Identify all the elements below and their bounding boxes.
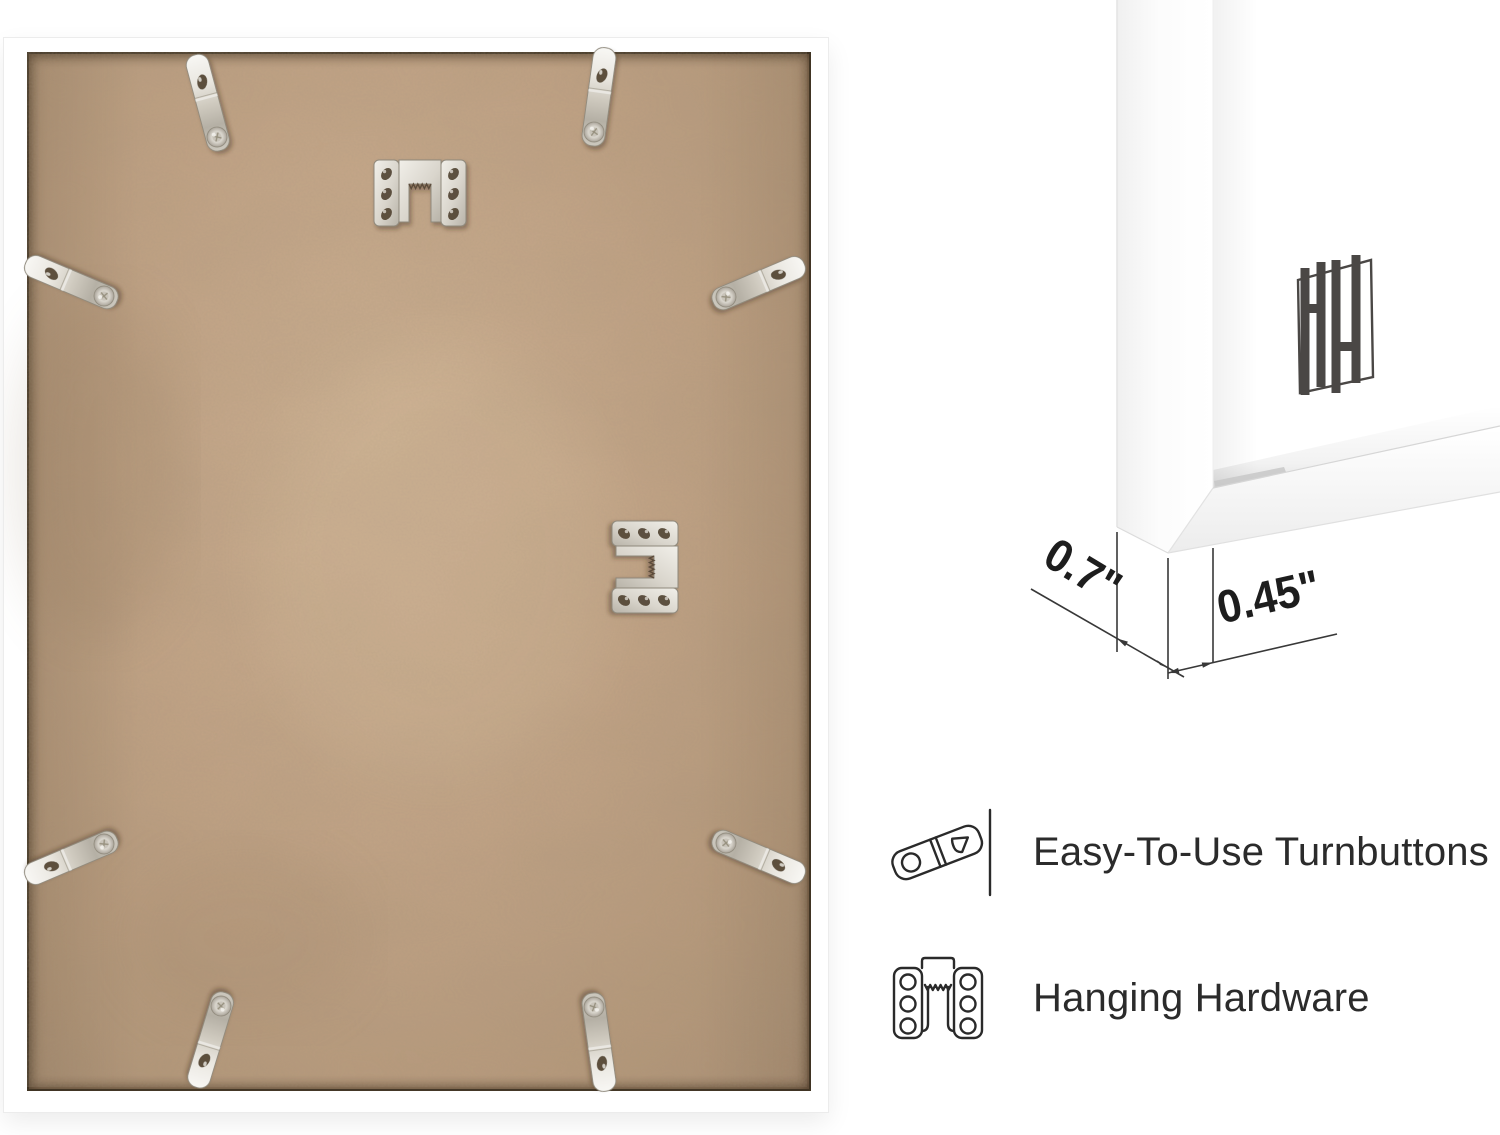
board-texture — [14, 52, 807, 1087]
hardware-overlay — [4, 38, 828, 1112]
feature-label-hanging-hardware: Hanging Hardware — [1033, 976, 1370, 1020]
brand-logo-bars — [1301, 255, 1361, 395]
width-measurement-label: 0.45" — [1212, 559, 1325, 633]
hanging-hardware-icon — [888, 952, 988, 1044]
frame-back-photo — [4, 38, 828, 1112]
feature-label-turnbuttons: Easy-To-Use Turnbuttons — [1033, 830, 1489, 874]
product-image: 0.7" 0.45" — [0, 0, 1500, 1135]
frame-corner-render: 0.7" 0.45" — [1020, 0, 1500, 720]
turnbutton-icon — [885, 800, 997, 902]
brand-logo — [1293, 252, 1377, 398]
mat-board — [1213, 0, 1500, 489]
dimension-arrows — [1117, 639, 1213, 674]
